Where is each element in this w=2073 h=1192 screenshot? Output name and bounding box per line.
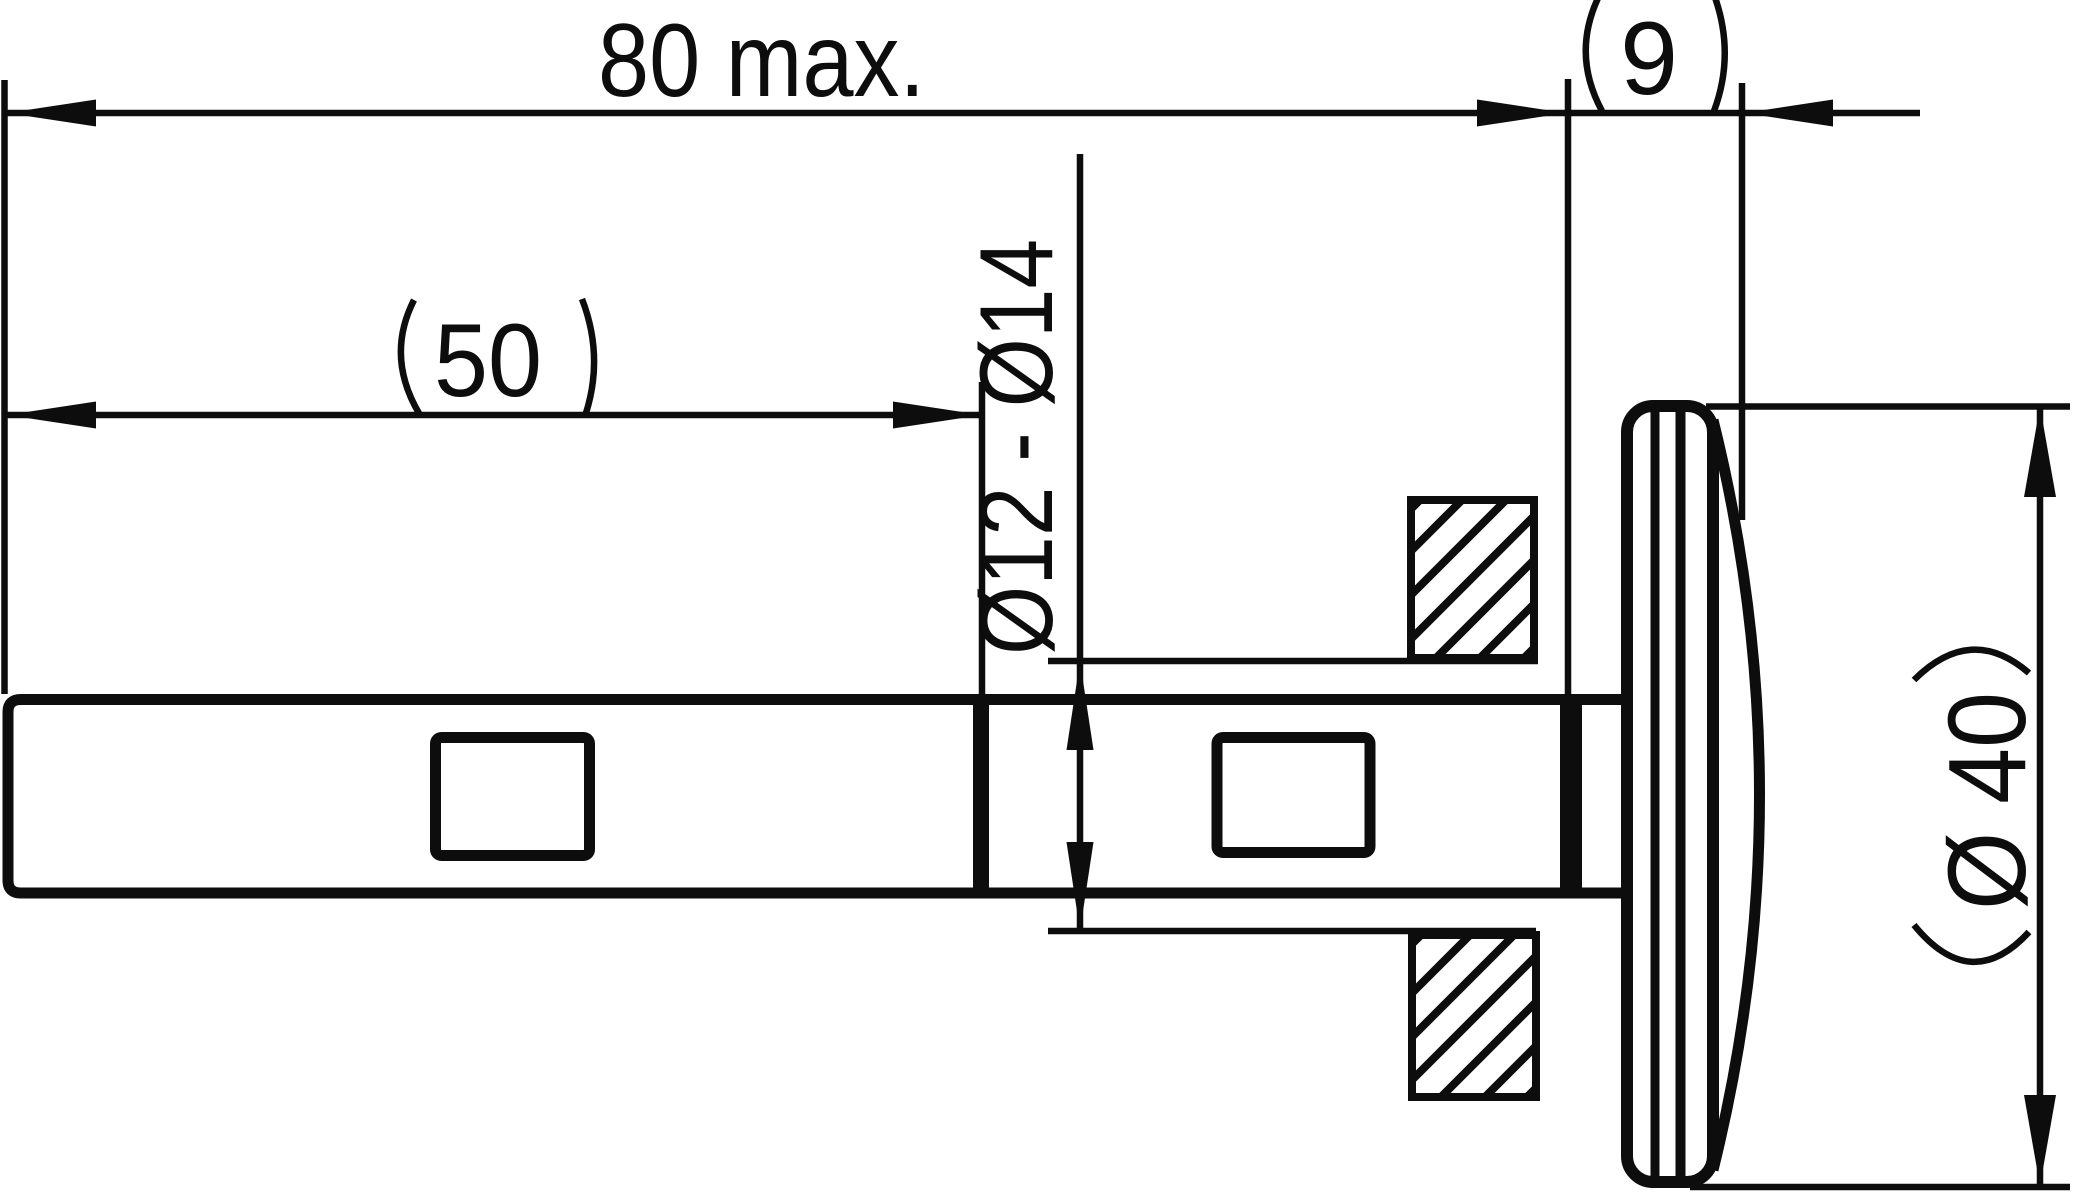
svg-text:80 max.: 80 max.: [598, 3, 925, 119]
svg-text:Ø12 - Ø14: Ø12 - Ø14: [959, 239, 1075, 655]
svg-text:Ø 40: Ø 40: [1926, 692, 2049, 910]
svg-text:9: 9: [1620, 1, 1678, 117]
svg-text:50: 50: [434, 303, 542, 419]
